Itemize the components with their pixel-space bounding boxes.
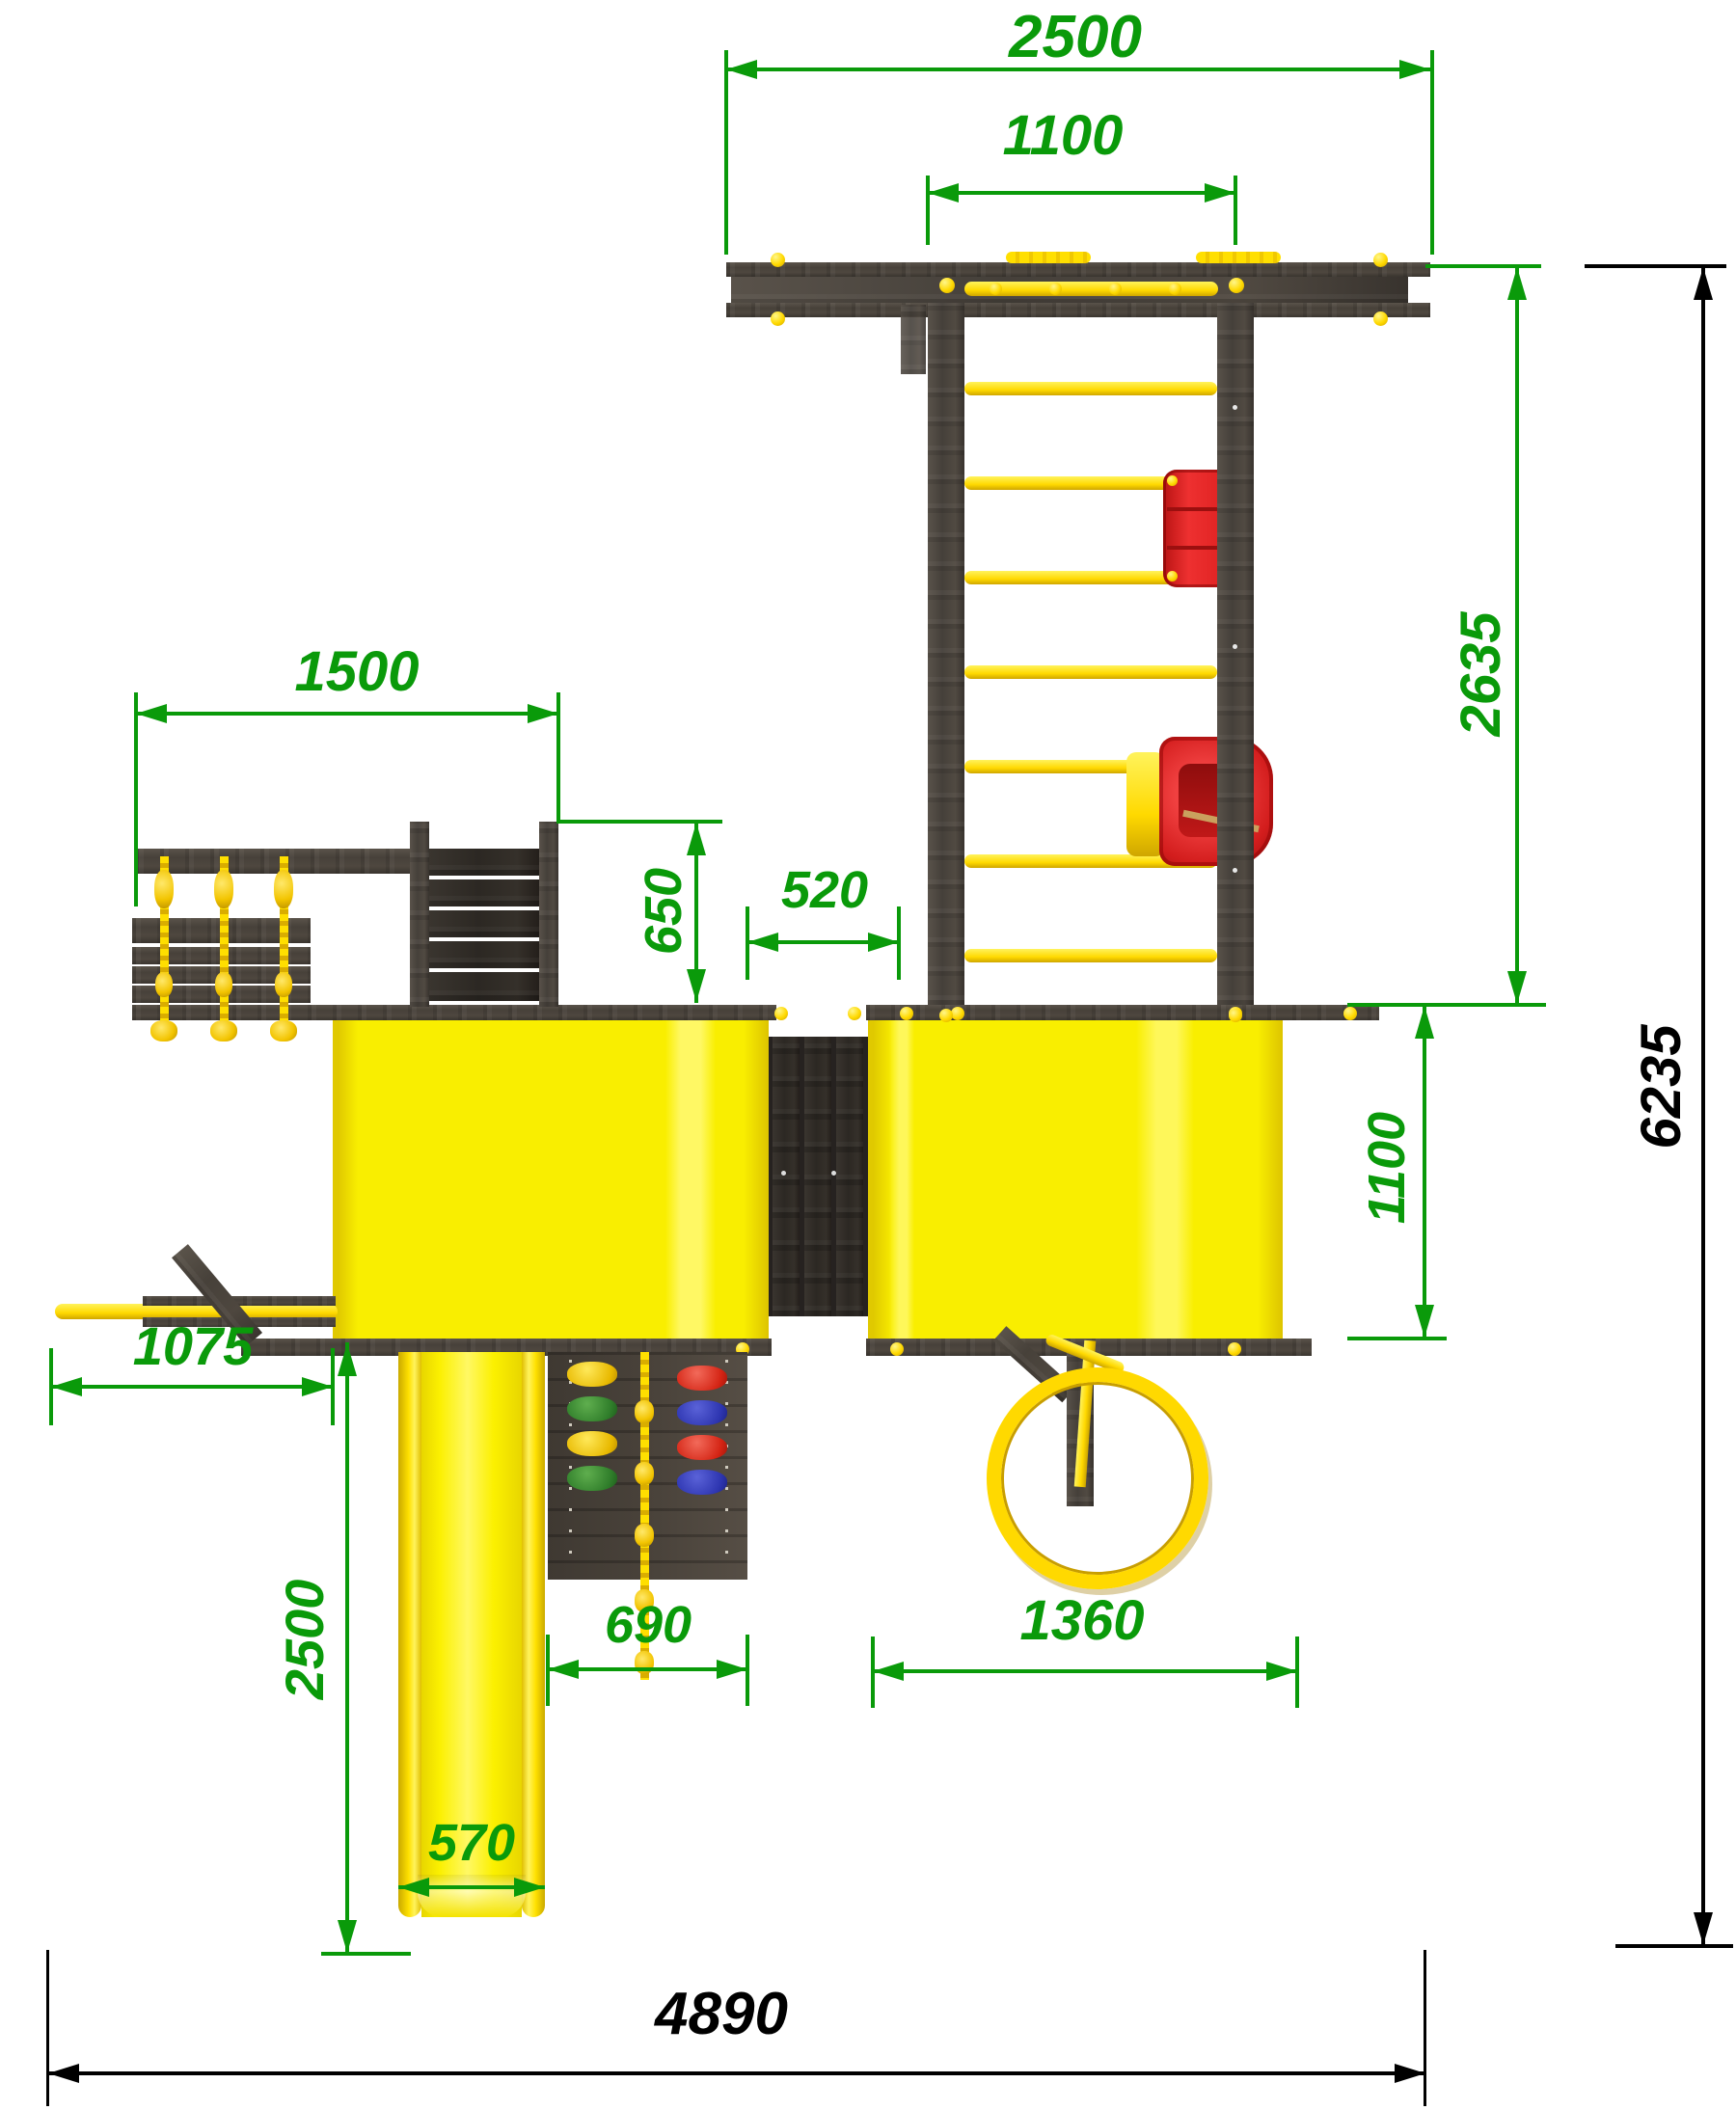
arrowhead	[717, 1660, 747, 1679]
rope-knot	[635, 1400, 654, 1423]
ladder-post-bracket	[901, 305, 926, 374]
bridge-screw	[831, 1171, 836, 1176]
arrowhead	[398, 1878, 429, 1897]
bolt	[939, 1009, 953, 1022]
climb-hold-blue	[677, 1470, 727, 1495]
arrowhead	[726, 60, 757, 79]
arrowhead	[1694, 267, 1713, 300]
dim-entry-offset-line	[51, 1385, 333, 1389]
rope-end-knot	[270, 1020, 297, 1041]
stair-rail-right	[539, 822, 558, 1007]
dim-bench-span-line	[136, 712, 558, 716]
right-tower-roof-ridge	[1136, 1020, 1194, 1339]
arrowhead	[1694, 1912, 1713, 1945]
swing-beam-top-plank	[726, 262, 1430, 277]
wall-screw-column	[725, 1360, 728, 1572]
dim-slide-width-label: 570	[375, 1817, 568, 1869]
bolt	[890, 1342, 904, 1356]
rope-knot	[635, 1462, 654, 1485]
arrowhead	[747, 933, 778, 952]
ladder-rung	[964, 949, 1217, 962]
arrowhead	[1507, 267, 1527, 300]
arrowhead	[514, 1878, 545, 1897]
extension-line	[546, 1635, 550, 1706]
dim-slide-length-line	[345, 1342, 349, 1954]
wall-screw-column	[569, 1360, 572, 1572]
dim-tower-depth-line	[1423, 1005, 1426, 1339]
post-screw	[1233, 868, 1237, 873]
extension-line	[1347, 1003, 1546, 1007]
dim-ladder-length-label: 2635	[1453, 549, 1509, 799]
ladder-rung	[964, 382, 1217, 395]
arrowhead	[873, 1662, 904, 1681]
stair-tread	[429, 879, 539, 906]
dim-tower-depth-label: 1100	[1361, 1042, 1413, 1293]
extension-line	[331, 1348, 335, 1425]
dim-bench-span-label: 1500	[222, 644, 492, 700]
bolt	[900, 1007, 913, 1020]
rope-end-knot	[150, 1020, 177, 1041]
climb-hold-green	[567, 1466, 617, 1491]
dimension-drawing-canvas: 2500 1100 2635 6235 1500 650 520 1100	[0, 0, 1736, 2110]
bolt	[1049, 283, 1062, 295]
dim-total-width-line	[48, 2071, 1425, 2075]
dim-beam-span-line	[726, 68, 1430, 71]
swing-beam-bottom-plank	[726, 303, 1430, 317]
arrowhead	[1399, 60, 1430, 79]
rope-coil	[214, 870, 233, 908]
rope-knot	[635, 1524, 654, 1547]
stair-tread	[429, 972, 539, 1001]
dim-rung-span-label: 1100	[937, 108, 1188, 164]
dim-beam-span-label: 2500	[931, 8, 1220, 68]
rope-coil	[274, 870, 293, 908]
extension-line	[926, 176, 930, 245]
bolt	[1229, 278, 1244, 293]
bridge-plank	[804, 1037, 831, 1316]
bridge-plank	[836, 1037, 863, 1316]
arrowhead	[528, 704, 558, 723]
rope-coil	[154, 870, 174, 908]
extension-line	[746, 906, 749, 980]
extension-line	[897, 906, 901, 980]
beam-handle-mount	[1006, 252, 1091, 263]
climb-hold-red	[677, 1366, 727, 1391]
dim-ring-span-line	[873, 1669, 1297, 1673]
post-screw	[1233, 405, 1237, 410]
extension-line	[49, 1348, 53, 1425]
bolt	[1169, 283, 1181, 295]
arrowhead	[1266, 1662, 1297, 1681]
dim-ring-span-label: 1360	[957, 1593, 1207, 1649]
swing-rope-anchor	[1167, 571, 1178, 582]
extension-line	[321, 1952, 411, 1956]
extension-line-black	[1424, 1950, 1426, 2106]
dim-total-depth-label: 6235	[1634, 961, 1690, 1212]
dim-slide-length-label: 2500	[278, 1514, 332, 1765]
swing-ring	[987, 1367, 1208, 1589]
stair-rail-left	[410, 822, 429, 1007]
arrowhead	[1415, 1006, 1434, 1039]
climb-hold-yellow	[567, 1431, 617, 1456]
bolt	[1373, 311, 1388, 326]
bolt	[1229, 1009, 1242, 1022]
extension-line-black	[1615, 1944, 1733, 1948]
arrowhead	[548, 1660, 579, 1679]
bolt	[848, 1007, 861, 1020]
left-tower-roof-ridge	[665, 1020, 716, 1339]
arrowhead	[136, 704, 167, 723]
arrowhead	[338, 1343, 357, 1376]
climb-hold-blue	[677, 1400, 727, 1425]
bolt	[1343, 1007, 1357, 1020]
dim-stair-depth-label: 650	[637, 786, 690, 1037]
arrowhead	[48, 2064, 79, 2083]
bolt	[771, 253, 785, 267]
bridge-plank	[773, 1037, 800, 1316]
post-screw	[1233, 644, 1237, 649]
arrowhead	[928, 183, 959, 203]
bolt	[1373, 253, 1388, 267]
beam-handle-mount	[1196, 252, 1281, 263]
arrowhead	[868, 933, 899, 952]
arrowhead	[687, 823, 706, 855]
climb-hold-yellow	[567, 1362, 617, 1387]
extension-line	[556, 692, 560, 824]
dim-rung-span-line	[928, 191, 1235, 195]
extension-line	[746, 1635, 749, 1706]
slide-foot-lip	[418, 1875, 526, 1917]
extension-line	[1295, 1637, 1299, 1708]
arrowhead	[1507, 971, 1527, 1004]
extension-line	[1234, 176, 1237, 245]
right-tower-roof	[868, 1020, 1283, 1339]
arrowhead	[338, 1920, 357, 1953]
bolt	[951, 1007, 964, 1020]
arrowhead	[687, 969, 706, 1002]
rope-end-knot	[210, 1020, 237, 1041]
dim-bridge-gap-label: 520	[728, 864, 921, 916]
bolt	[1228, 1342, 1241, 1356]
bolt	[771, 311, 785, 326]
bolt	[939, 278, 955, 293]
stair-tread	[429, 941, 539, 968]
extension-line-black	[46, 1950, 49, 2106]
extension-line	[724, 50, 728, 255]
arrowhead	[302, 1377, 333, 1396]
dim-ladder-length-line	[1515, 266, 1519, 1005]
ladder-post-left	[928, 303, 964, 1005]
arrowhead	[1415, 1305, 1434, 1338]
bridge-screw	[781, 1171, 786, 1176]
swing-rope-anchor	[1167, 475, 1178, 486]
rope-knot	[275, 972, 292, 997]
right-tower-roof-ridge	[889, 1020, 914, 1339]
dim-total-width-label: 4890	[596, 1985, 847, 2044]
ladder-rung	[964, 665, 1217, 679]
bolt	[774, 1007, 788, 1020]
arrowhead	[1205, 183, 1235, 203]
climb-hold-red	[677, 1435, 727, 1460]
rope-knot	[155, 972, 173, 997]
dim-entry-offset-label: 1075	[68, 1319, 318, 1373]
bolt	[1109, 283, 1122, 295]
rope-knot	[215, 972, 232, 997]
stair-tread	[429, 849, 539, 876]
dim-total-depth-line	[1701, 266, 1705, 1946]
dim-wall-width-label: 690	[552, 1599, 745, 1651]
arrowhead	[51, 1377, 82, 1396]
extension-line	[134, 692, 138, 906]
bolt	[990, 283, 1002, 295]
stair-tread	[429, 910, 539, 937]
extension-line	[871, 1637, 875, 1708]
extension-line	[1430, 50, 1434, 255]
climb-hold-green	[567, 1396, 617, 1421]
arrowhead	[1395, 2064, 1425, 2083]
